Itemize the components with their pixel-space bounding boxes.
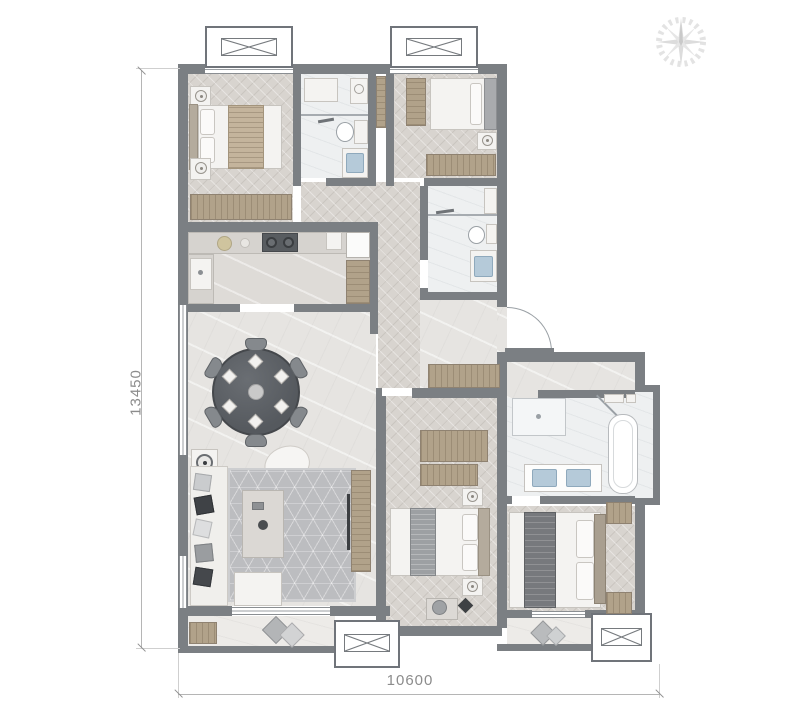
window-glyph-icon — [221, 38, 277, 56]
faucet-icon — [198, 270, 203, 275]
tall-cabinet — [346, 260, 370, 304]
burner-icon — [283, 237, 294, 248]
sofa-pillow — [193, 473, 212, 492]
wall-kitchen-top — [178, 222, 378, 232]
wall-foyer-bed3-a — [376, 388, 382, 398]
tv-console — [351, 470, 371, 572]
small-appliance — [326, 232, 342, 250]
dining-chair — [245, 434, 267, 447]
wall-living-bedroom3 — [376, 396, 386, 626]
bath-shelf — [304, 78, 338, 102]
bed-headboard — [484, 78, 497, 130]
speaker-dot-icon — [203, 461, 207, 465]
nightstand — [606, 502, 632, 524]
wardrobe — [420, 430, 488, 462]
dimension-label-height: 13450 — [128, 363, 145, 423]
toilet-tank — [486, 224, 497, 244]
toilet-icon — [336, 122, 354, 142]
lamp-icon — [467, 581, 478, 592]
bed-headboard — [594, 514, 606, 604]
lamp-icon — [482, 135, 493, 146]
pillow — [200, 109, 215, 135]
bed-runner — [410, 508, 436, 576]
wall-bath1-bottom-a — [293, 178, 301, 186]
nightstand — [606, 592, 632, 614]
tv-icon — [347, 494, 350, 550]
sink-basin — [566, 469, 591, 487]
closet-shelving — [376, 76, 386, 128]
sofa-pillow — [194, 495, 215, 516]
washing-machine-icon — [484, 188, 497, 214]
ottoman — [234, 572, 282, 606]
wall-kitchen-bottom-b — [294, 304, 378, 312]
toilet-tank — [354, 120, 368, 144]
wall-bedroom3-bottom — [382, 626, 502, 636]
lamp-icon — [195, 162, 207, 174]
wall-bed1-bath1 — [293, 72, 301, 182]
sink-basin — [532, 469, 557, 487]
burner-icon — [266, 237, 277, 248]
shower-drain-icon — [536, 414, 541, 419]
wall-bedroom2-bottom-b — [424, 178, 507, 186]
centerpiece-icon — [248, 384, 264, 400]
wall-kitchen-right — [370, 222, 378, 314]
wardrobe — [420, 464, 478, 486]
shower-glass-screen — [301, 114, 368, 116]
dining-chair — [245, 338, 267, 351]
wall-bedroom2-left — [386, 72, 394, 186]
window-glyph-icon — [344, 634, 390, 652]
wall-bath1-right — [368, 72, 376, 182]
wall-bedroom2-bottom-a — [386, 178, 394, 186]
entry-door-leaf — [505, 348, 554, 353]
pillow — [462, 514, 478, 541]
balcony-mat — [189, 622, 217, 644]
floor-entry-threshold — [497, 305, 507, 352]
entry-door-swing-arc — [507, 307, 552, 352]
wall-bed3-mastersuite — [497, 362, 507, 628]
sofa-pillow — [194, 543, 214, 563]
bench — [426, 154, 496, 176]
window-left-living — [179, 556, 187, 608]
lamp-icon — [195, 90, 207, 102]
wall-bath1-bottom-b — [326, 178, 376, 186]
table-decor-icon — [258, 520, 268, 530]
floor-plan-canvas: 13450 10600 — [0, 0, 789, 720]
bed-runner — [228, 105, 264, 169]
witness-line — [136, 68, 180, 69]
sink-basin — [346, 153, 364, 173]
wall-alcove-bottom — [635, 498, 660, 505]
wall-kitchen-bottom-a — [178, 304, 240, 312]
wall-foyer-bed3-b — [412, 388, 507, 398]
wall-entry-top — [497, 352, 645, 362]
pillow — [576, 562, 594, 600]
table-decor-icon — [252, 502, 264, 510]
shower-glass-screen — [428, 214, 497, 216]
pillow — [576, 520, 594, 558]
washer-drum-icon — [354, 84, 364, 94]
cutting-board-icon — [217, 236, 232, 251]
compass-rose-icon — [655, 16, 707, 68]
wall-alcove-right — [653, 385, 660, 505]
bowl-icon — [240, 238, 250, 248]
sofa-pillow — [192, 518, 212, 538]
lamp-icon — [467, 491, 478, 502]
wall-dining-hall — [370, 312, 378, 334]
window-glyph-icon — [601, 628, 642, 646]
dresser — [190, 194, 292, 220]
shoe-cabinet — [428, 364, 500, 388]
dimension-label-width: 10600 — [370, 672, 450, 689]
dimension-line-vertical — [141, 70, 142, 648]
window-glyph-icon — [406, 38, 462, 56]
bed-headboard — [478, 508, 490, 576]
sofa-pillow — [193, 567, 214, 588]
bath-shelf — [604, 394, 624, 403]
wall-bath2-bottom — [420, 292, 505, 300]
wall-masterbath-bottom-a — [497, 496, 512, 504]
wall-balcony-outer — [178, 646, 338, 653]
floor-hall — [378, 182, 420, 388]
dimension-line-horizontal — [178, 694, 660, 695]
bed-runner — [524, 512, 556, 608]
bath-shelf — [626, 394, 636, 403]
bathtub-inner — [613, 420, 633, 488]
window-left-dining — [179, 305, 187, 455]
glass-door-living-balcony — [232, 607, 330, 615]
wardrobe — [406, 78, 426, 126]
witness-line — [178, 653, 179, 698]
desk-chair — [432, 600, 447, 615]
wall-bath2-left-a — [420, 186, 428, 260]
pillow — [470, 83, 482, 125]
wall-balcony-master-outer — [497, 644, 594, 651]
pillow — [462, 544, 478, 571]
toilet-icon — [468, 226, 485, 244]
fridge-icon — [346, 232, 370, 258]
wall-right-lower — [635, 505, 645, 614]
glass-door-master-balcony — [532, 611, 585, 618]
sink-basin — [474, 256, 493, 277]
